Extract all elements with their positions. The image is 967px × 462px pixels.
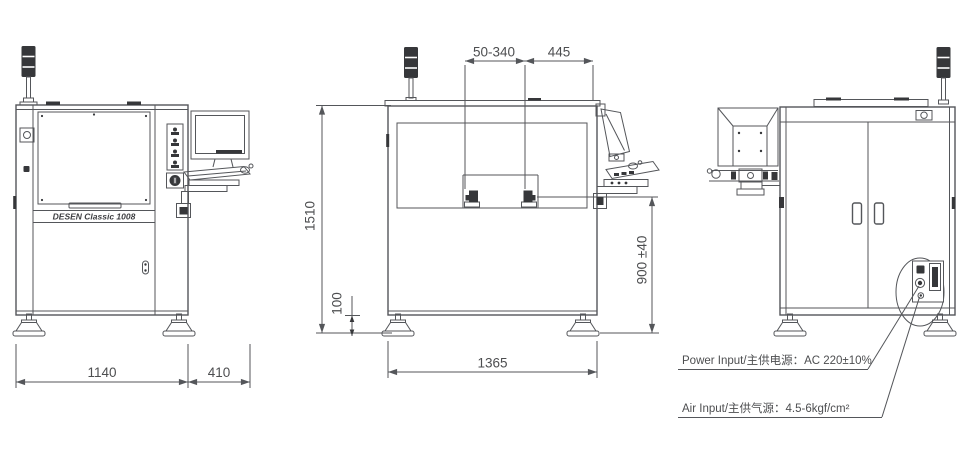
- dim-console-width-value: 410: [208, 365, 231, 380]
- dim-foot-height-value: 100: [330, 292, 345, 315]
- power-socket-plate: [916, 111, 932, 121]
- drawing-canvas: DESEN Classic 1008: [0, 0, 967, 462]
- front-cabinet: [13, 102, 188, 316]
- control-button-strip: [167, 124, 183, 170]
- leveling-feet: [382, 314, 599, 336]
- dim-foot-height: 100: [330, 292, 361, 336]
- signal-tower-light-icon: [937, 47, 951, 104]
- dim-depth: 1365: [388, 341, 597, 378]
- leveling-feet: [13, 314, 195, 336]
- dim-total-height: 1510: [303, 106, 393, 334]
- front-view: DESEN Classic 1008: [13, 46, 253, 388]
- monitor-rear: [718, 108, 778, 166]
- door-handle-left: [853, 203, 862, 224]
- dim-clamp-to-edge-value: 445: [548, 45, 571, 60]
- monitor: [191, 111, 249, 167]
- dim-conveyor-height: 900 ±40: [600, 197, 659, 333]
- signal-tower-light-icon: [20, 46, 37, 105]
- power-input-label: Power Input/主供电源：AC 220±10%: [682, 353, 872, 367]
- dim-front-width: 1140 410: [16, 344, 250, 388]
- dim-conveyor-height-value: 900 ±40: [635, 236, 650, 285]
- utility-connection-panel: [896, 258, 944, 326]
- board-clamp-left: [465, 191, 480, 208]
- annotation-power-input: Power Input/主供电源：AC 220±10%: [678, 286, 919, 370]
- dim-front-width-value: 1140: [87, 365, 116, 380]
- board-clamp-right: [522, 191, 537, 208]
- brand-logo-text: DESEN Classic 1008: [53, 212, 136, 222]
- rear-view: Power Input/主供电源：AC 220±10% Air Input/主供…: [678, 47, 956, 418]
- keyboard-tray-rear: [707, 169, 780, 195]
- signal-tower-light-icon: [404, 47, 418, 101]
- monitor-side: [594, 104, 660, 209]
- emergency-stop-button: [167, 173, 184, 188]
- dim-total-height-value: 1510: [303, 201, 318, 231]
- dim-board-range-value: 50-340: [473, 45, 515, 60]
- leveling-feet: [774, 314, 956, 336]
- dim-depth-value: 1365: [477, 356, 507, 371]
- dim-board-range: 50-340 445: [465, 45, 593, 190]
- air-input-label: Air Input/主供气源：4.5-6kgf/cm²: [682, 401, 850, 415]
- side-view: 50-340 445 1510 100 900 ±40: [303, 45, 660, 379]
- dimension-drawing: DESEN Classic 1008: [0, 0, 967, 462]
- door-handle-right: [875, 203, 884, 224]
- side-cabinet: [385, 98, 600, 315]
